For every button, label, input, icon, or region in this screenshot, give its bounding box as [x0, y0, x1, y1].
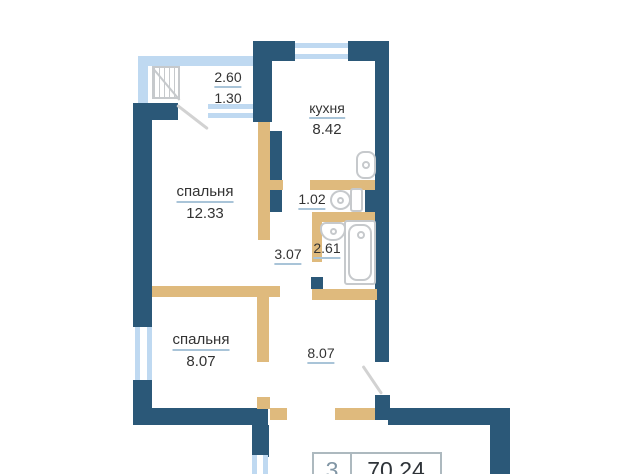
- closet-hatch-icon: [152, 66, 180, 99]
- wall-interior: [268, 180, 283, 190]
- wall-exterior: [270, 131, 282, 212]
- balcony-label: 2.60 1.30: [214, 69, 241, 106]
- rooms-count: 3: [314, 454, 352, 474]
- balcony-wall: [138, 56, 148, 104]
- room-label-wc: 1.02: [298, 191, 325, 212]
- wall-exterior: [133, 103, 152, 327]
- wall-interior: [310, 180, 375, 190]
- total-area: 70.24: [352, 454, 440, 474]
- room-label-kitchen: кухня 8.42: [309, 100, 345, 138]
- room-area: 8.07: [173, 353, 230, 370]
- room-label-hall: 8.07: [307, 345, 334, 366]
- window: [252, 455, 268, 474]
- wall-interior: [335, 408, 375, 420]
- wall-interior: [270, 408, 287, 420]
- room-area: 3.07: [274, 246, 301, 262]
- room-area: 8.42: [309, 121, 345, 138]
- wall-exterior: [252, 425, 269, 457]
- wall-interior: [257, 286, 269, 362]
- room-area: 2.61: [313, 240, 340, 256]
- door-swing-line: [362, 365, 384, 395]
- room-label-bedroom-2: спальня 8.07: [173, 331, 230, 371]
- balcony-area-total: 2.60: [214, 69, 241, 85]
- bathtub-icon: [344, 220, 376, 285]
- wall-exterior: [490, 408, 510, 474]
- room-area: 12.33: [177, 205, 234, 222]
- washbasin-drain: [330, 228, 337, 235]
- wall-interior: [258, 122, 270, 240]
- room-name: кухня: [309, 100, 345, 116]
- window: [295, 43, 348, 59]
- apartment-summary-box: 3 70.24: [312, 452, 442, 474]
- window: [135, 327, 152, 380]
- toilet-detail: [337, 197, 344, 204]
- wall-exterior: [133, 408, 268, 425]
- room-name: спальня: [177, 183, 234, 200]
- kitchen-sink-drain: [362, 161, 370, 169]
- wall-interior: [312, 289, 377, 300]
- floor-plan: 2.60 1.30 кухня 8.42 спальня 12.33 1.02 …: [0, 0, 640, 474]
- room-name: спальня: [173, 331, 230, 348]
- room-area: 1.02: [298, 191, 325, 207]
- door-swing-line: [176, 104, 209, 130]
- balcony-area-reduced: 1.30: [214, 90, 241, 106]
- wall-door-pivot: [311, 277, 323, 289]
- room-label-corridor: 3.07: [274, 246, 301, 267]
- wall-interior: [257, 397, 270, 409]
- balcony-wall: [138, 56, 253, 66]
- toilet-tank-icon: [350, 188, 363, 212]
- room-area: 8.07: [307, 345, 334, 361]
- room-label-bedroom-1: спальня 12.33: [177, 183, 234, 223]
- wall-exterior: [253, 41, 272, 122]
- room-label-bathroom: 2.61: [313, 240, 340, 261]
